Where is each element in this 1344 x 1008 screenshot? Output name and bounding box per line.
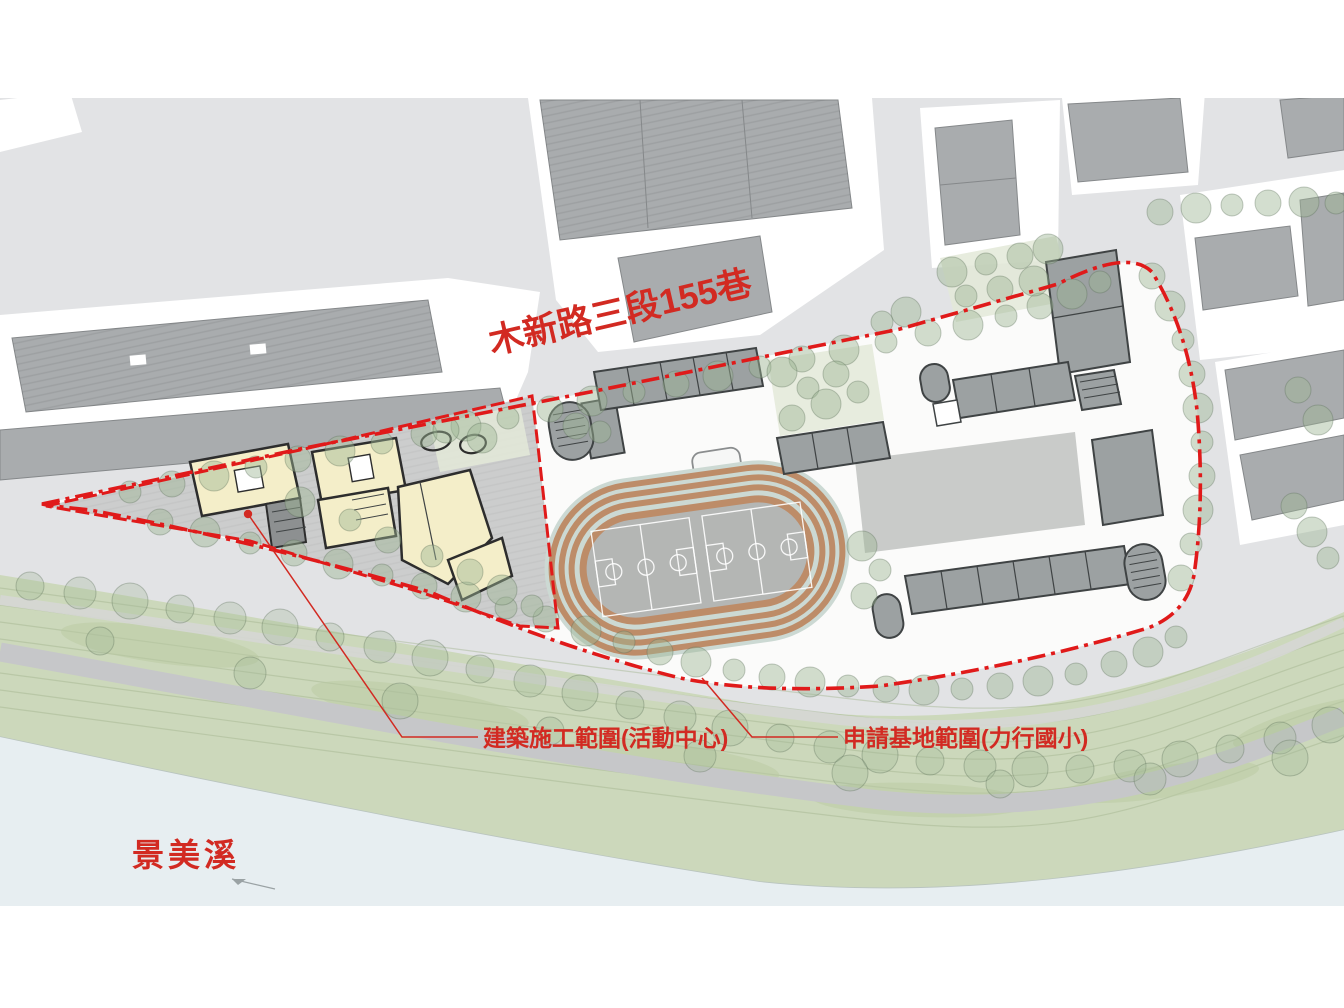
tree bbox=[937, 257, 967, 287]
tree bbox=[1133, 637, 1163, 667]
tree bbox=[1272, 740, 1308, 776]
tree bbox=[909, 675, 939, 705]
tree bbox=[1162, 741, 1198, 777]
tree bbox=[987, 673, 1013, 699]
tree bbox=[467, 423, 497, 453]
tree bbox=[811, 389, 841, 419]
tree bbox=[873, 676, 899, 702]
tree bbox=[837, 675, 859, 697]
tree bbox=[1285, 377, 1311, 403]
tree bbox=[1221, 194, 1243, 216]
tree bbox=[589, 421, 611, 443]
river-name-label: 景美溪 bbox=[132, 837, 240, 873]
tree bbox=[795, 667, 825, 697]
tree bbox=[457, 559, 483, 585]
tree bbox=[1181, 193, 1211, 223]
tree bbox=[1027, 293, 1053, 319]
tree bbox=[955, 285, 977, 307]
tree bbox=[847, 531, 877, 561]
tree bbox=[514, 665, 546, 697]
tree bbox=[1165, 626, 1187, 648]
tree bbox=[64, 577, 96, 609]
tree bbox=[823, 361, 849, 387]
tree bbox=[1281, 493, 1307, 519]
tree bbox=[916, 747, 944, 775]
tree bbox=[371, 432, 393, 454]
tree bbox=[1303, 405, 1333, 435]
tree bbox=[234, 657, 266, 689]
tree bbox=[1297, 517, 1327, 547]
tree bbox=[1089, 271, 1111, 293]
tree bbox=[466, 655, 494, 683]
tree bbox=[951, 678, 973, 700]
tree bbox=[1019, 266, 1049, 296]
tree bbox=[1012, 751, 1048, 787]
tree bbox=[1289, 187, 1319, 217]
tree bbox=[1066, 755, 1094, 783]
tree bbox=[1216, 735, 1244, 763]
tree bbox=[681, 647, 711, 677]
tree bbox=[487, 575, 517, 605]
tree bbox=[851, 583, 877, 609]
tree bbox=[214, 602, 246, 634]
tree bbox=[723, 659, 745, 681]
tree bbox=[995, 305, 1017, 327]
tree bbox=[421, 545, 443, 567]
tree bbox=[767, 357, 797, 387]
tree bbox=[986, 770, 1014, 798]
tree bbox=[1147, 199, 1173, 225]
tree bbox=[364, 631, 396, 663]
tree bbox=[339, 509, 361, 531]
tree bbox=[375, 527, 401, 553]
tree bbox=[613, 631, 635, 653]
site-plan-page: 建築施工範圍(活動中心) 申請基地範圍(力行國小) 木新路三段155巷 景美溪 bbox=[0, 0, 1344, 1008]
tree bbox=[832, 755, 868, 791]
tree bbox=[1134, 763, 1166, 795]
tree bbox=[571, 616, 601, 646]
tree bbox=[1325, 192, 1344, 214]
tree bbox=[779, 405, 805, 431]
site-plan-map: 建築施工範圍(活動中心) 申請基地範圍(力行國小) 木新路三段155巷 景美溪 bbox=[0, 0, 1344, 1008]
tree bbox=[869, 559, 891, 581]
tree bbox=[562, 675, 598, 711]
tree bbox=[112, 583, 148, 619]
tree bbox=[1255, 190, 1281, 216]
tree bbox=[262, 609, 298, 645]
site-scope-label: 申請基地範圍(力行國小) bbox=[843, 725, 1088, 751]
tree bbox=[1023, 666, 1053, 696]
tree bbox=[1065, 663, 1087, 685]
tree bbox=[975, 253, 997, 275]
tree bbox=[382, 683, 418, 719]
tree bbox=[412, 640, 448, 676]
tree bbox=[86, 627, 114, 655]
tree bbox=[16, 572, 44, 600]
tree bbox=[647, 639, 673, 665]
tree bbox=[563, 413, 589, 439]
tree bbox=[166, 595, 194, 623]
tree bbox=[119, 481, 141, 503]
tree bbox=[521, 595, 543, 617]
tree bbox=[953, 310, 983, 340]
tree bbox=[1155, 291, 1185, 321]
tree bbox=[1312, 707, 1344, 743]
tree bbox=[1057, 279, 1087, 309]
tree bbox=[1191, 431, 1213, 453]
tree bbox=[766, 724, 794, 752]
tree bbox=[1317, 547, 1339, 569]
tree bbox=[1101, 651, 1127, 677]
tree bbox=[1033, 234, 1063, 264]
tree bbox=[1007, 243, 1033, 269]
tree bbox=[285, 487, 315, 517]
construction-scope-label: 建築施工範圍(活動中心) bbox=[483, 725, 728, 751]
tree bbox=[616, 691, 644, 719]
tree bbox=[847, 381, 869, 403]
